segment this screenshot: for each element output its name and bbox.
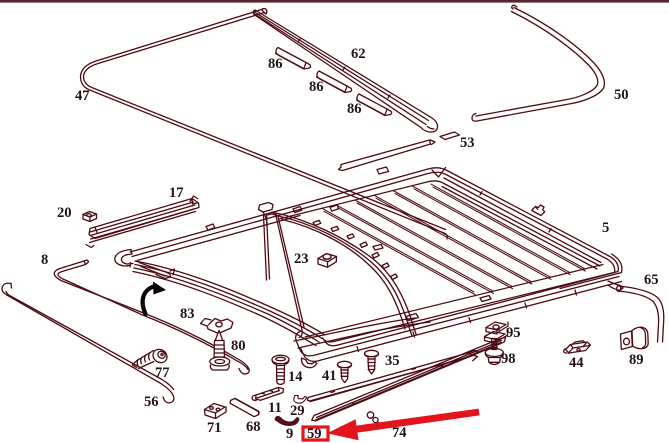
svg-text:47: 47: [75, 88, 90, 104]
svg-text:59: 59: [307, 426, 322, 442]
svg-text:50: 50: [614, 87, 629, 103]
svg-text:53: 53: [460, 135, 475, 151]
svg-text:11: 11: [268, 400, 282, 416]
svg-text:98: 98: [501, 351, 516, 367]
svg-text:8: 8: [41, 252, 48, 268]
svg-text:74: 74: [392, 425, 407, 441]
svg-text:65: 65: [644, 272, 659, 288]
svg-text:77: 77: [155, 365, 170, 381]
svg-text:89: 89: [629, 352, 644, 368]
svg-text:83: 83: [180, 306, 195, 322]
svg-text:9: 9: [286, 426, 293, 442]
svg-text:95: 95: [506, 325, 521, 341]
svg-text:41: 41: [322, 368, 337, 384]
svg-text:68: 68: [246, 419, 261, 435]
svg-text:86: 86: [309, 79, 324, 95]
svg-text:17: 17: [169, 185, 184, 201]
svg-text:5: 5: [602, 220, 609, 236]
svg-text:56: 56: [144, 394, 159, 410]
svg-text:62: 62: [351, 46, 366, 62]
svg-text:14: 14: [288, 369, 303, 385]
svg-text:44: 44: [569, 355, 584, 371]
svg-text:86: 86: [268, 56, 283, 72]
svg-text:71: 71: [207, 420, 222, 436]
svg-text:35: 35: [385, 353, 400, 369]
svg-text:20: 20: [57, 205, 72, 221]
svg-text:23: 23: [294, 251, 309, 267]
svg-text:86: 86: [347, 101, 362, 117]
svg-text:29: 29: [290, 403, 305, 419]
svg-text:80: 80: [231, 338, 246, 354]
